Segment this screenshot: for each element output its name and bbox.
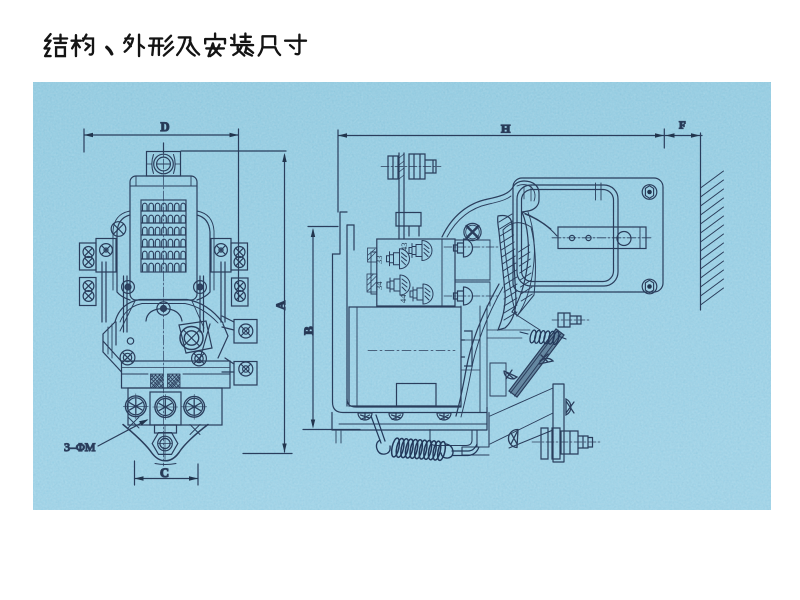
svg-text:44: 44 (398, 294, 408, 303)
svg-text:H: H (501, 122, 511, 136)
svg-text:3–ΦM: 3–ΦM (64, 440, 96, 454)
svg-text:F: F (679, 120, 686, 132)
svg-text:C: C (160, 466, 169, 480)
svg-text:33: 33 (374, 256, 384, 265)
svg-text:B: B (301, 326, 316, 335)
svg-text:D: D (161, 120, 170, 134)
svg-text:43: 43 (399, 243, 409, 252)
svg-text:34: 34 (374, 281, 384, 290)
svg-text:A: A (273, 300, 288, 310)
